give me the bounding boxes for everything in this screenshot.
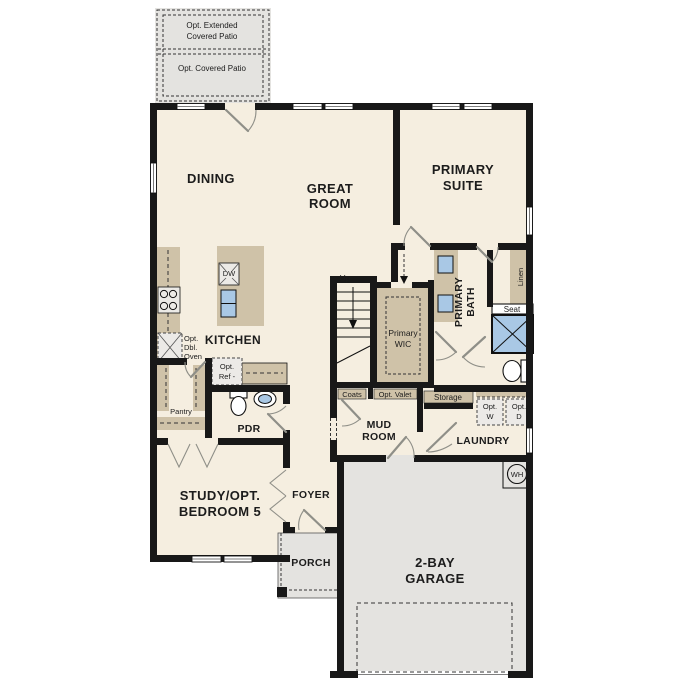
label-pantry: Pantry <box>170 407 192 416</box>
label-porch: PORCH <box>291 557 330 569</box>
label-wh: WH <box>511 470 524 479</box>
cooktop <box>158 287 180 313</box>
window <box>527 207 533 235</box>
window <box>464 104 492 110</box>
label-dw: DW <box>223 269 236 278</box>
label-fridge-2: Ref - <box>219 372 236 381</box>
label-kitchen: KITCHEN <box>205 333 261 347</box>
label-storage: Storage <box>434 393 463 402</box>
floor-plan-page: Opt. Extended Covered Patio Opt. Covered… <box>0 0 687 687</box>
window <box>293 104 322 110</box>
window <box>177 104 205 110</box>
label-oven-1: Opt. <box>184 334 198 343</box>
label-primary-bath-1: PRIMARY <box>453 277 465 327</box>
label-up: Up <box>340 273 351 283</box>
label-study-1: STUDY/OPT. <box>180 488 261 503</box>
label-ext-patio-2: Covered Patio <box>187 32 238 41</box>
label-ext-patio-1: Opt. Extended <box>186 21 237 30</box>
window <box>432 104 460 110</box>
label-seat: Seat <box>504 305 521 314</box>
bath-toilet <box>503 360 530 382</box>
label-wic-1: Primary <box>388 328 418 338</box>
label-washer-2: W <box>486 412 494 421</box>
label-study-2: BEDROOM 5 <box>179 504 261 519</box>
window <box>192 556 221 562</box>
label-garage-2: GARAGE <box>405 571 464 586</box>
label-primary-suite-2: SUITE <box>443 178 483 193</box>
label-garage-1: 2-BAY <box>415 555 455 570</box>
label-oven-2: Dbl. <box>184 343 197 352</box>
label-laundry: LAUNDRY <box>456 435 509 447</box>
opt-double-oven <box>158 333 182 362</box>
label-fridge-1: Opt. <box>220 362 234 371</box>
label-great-room-2: ROOM <box>309 196 351 211</box>
label-dryer-1: Opt. <box>512 402 526 411</box>
window <box>151 163 157 193</box>
bath-sink-2 <box>438 295 453 312</box>
label-great-room-1: GREAT <box>307 181 354 196</box>
label-covered-patio: Opt. Covered Patio <box>178 64 247 73</box>
bath-sink-1 <box>438 256 453 273</box>
window <box>325 104 353 110</box>
label-primary-bath-2: BATH <box>465 287 477 317</box>
window <box>224 556 252 562</box>
label-coats: Coats <box>342 390 362 399</box>
label-linen: Linen <box>516 268 525 286</box>
label-primary-suite-1: PRIMARY <box>432 162 494 177</box>
floor-plan-svg: Opt. Extended Covered Patio Opt. Covered… <box>0 0 687 687</box>
pdr-sink <box>254 391 276 407</box>
label-mud-room-1: MUD <box>367 419 392 431</box>
label-dryer-2: D <box>516 412 522 421</box>
pdr-toilet <box>230 390 247 416</box>
label-dining: DINING <box>187 171 235 186</box>
pantry-shelf-left <box>157 365 169 411</box>
label-foyer: FOYER <box>292 489 330 501</box>
window <box>527 428 533 453</box>
label-valet: Opt. Valet <box>379 390 413 399</box>
porch-post <box>277 587 287 597</box>
label-mud-room-2: ROOM <box>362 431 396 443</box>
label-wic-2: WIC <box>395 339 412 349</box>
label-washer-1: Opt. <box>483 402 497 411</box>
label-pdr: PDR <box>237 423 260 435</box>
island-sink <box>221 290 236 317</box>
